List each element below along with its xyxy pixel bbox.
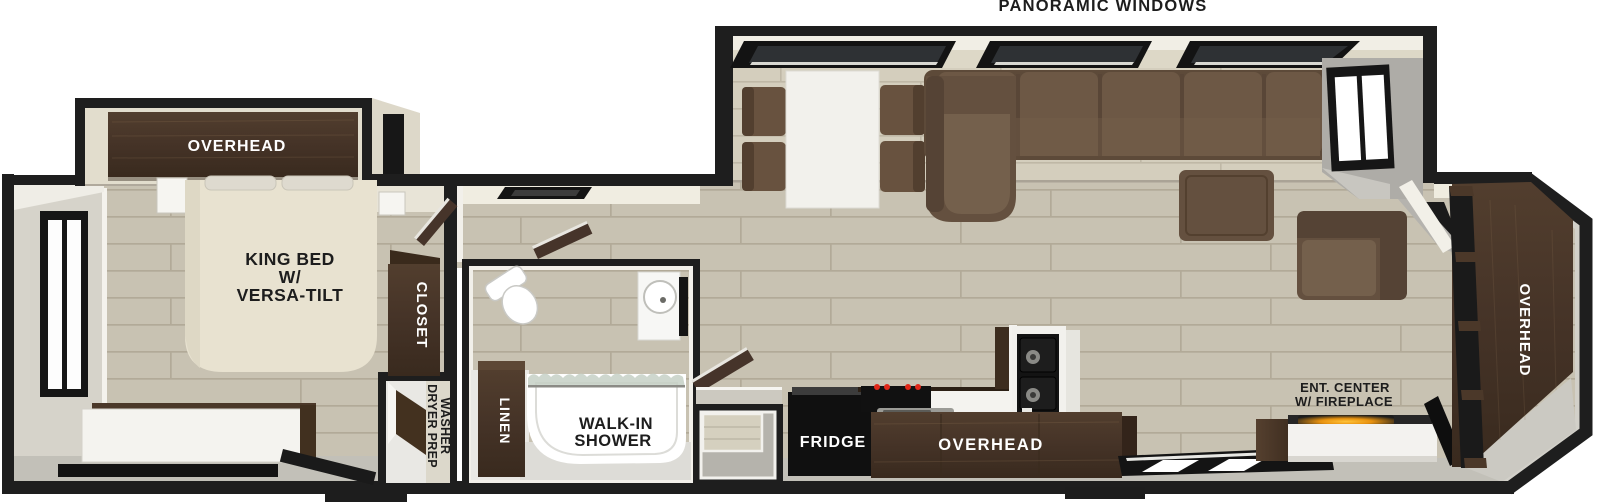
- svg-text:CLOSET: CLOSET: [413, 282, 430, 349]
- svg-text:OVERHEAD: OVERHEAD: [188, 138, 287, 155]
- svg-text:PANORAMIC WINDOWS: PANORAMIC WINDOWS: [999, 0, 1208, 15]
- svg-text:KING BED: KING BED: [245, 249, 335, 269]
- svg-text:VERSA-TILT: VERSA-TILT: [237, 285, 344, 305]
- svg-text:ENT. CENTER: ENT. CENTER: [1300, 380, 1390, 395]
- svg-text:LINEN: LINEN: [497, 398, 513, 445]
- svg-text:WASHER: WASHER: [438, 398, 452, 455]
- svg-text:W/: W/: [279, 267, 301, 287]
- svg-text:OVERHEAD: OVERHEAD: [938, 436, 1044, 454]
- svg-text:WALK-IN: WALK-IN: [579, 415, 653, 433]
- svg-text:W/ FIREPLACE: W/ FIREPLACE: [1295, 394, 1393, 409]
- svg-text:SHOWER: SHOWER: [574, 432, 651, 450]
- svg-text:OVERHEAD: OVERHEAD: [1516, 283, 1533, 376]
- svg-text:DRYER PREP: DRYER PREP: [425, 384, 439, 468]
- svg-text:FRIDGE: FRIDGE: [800, 434, 866, 451]
